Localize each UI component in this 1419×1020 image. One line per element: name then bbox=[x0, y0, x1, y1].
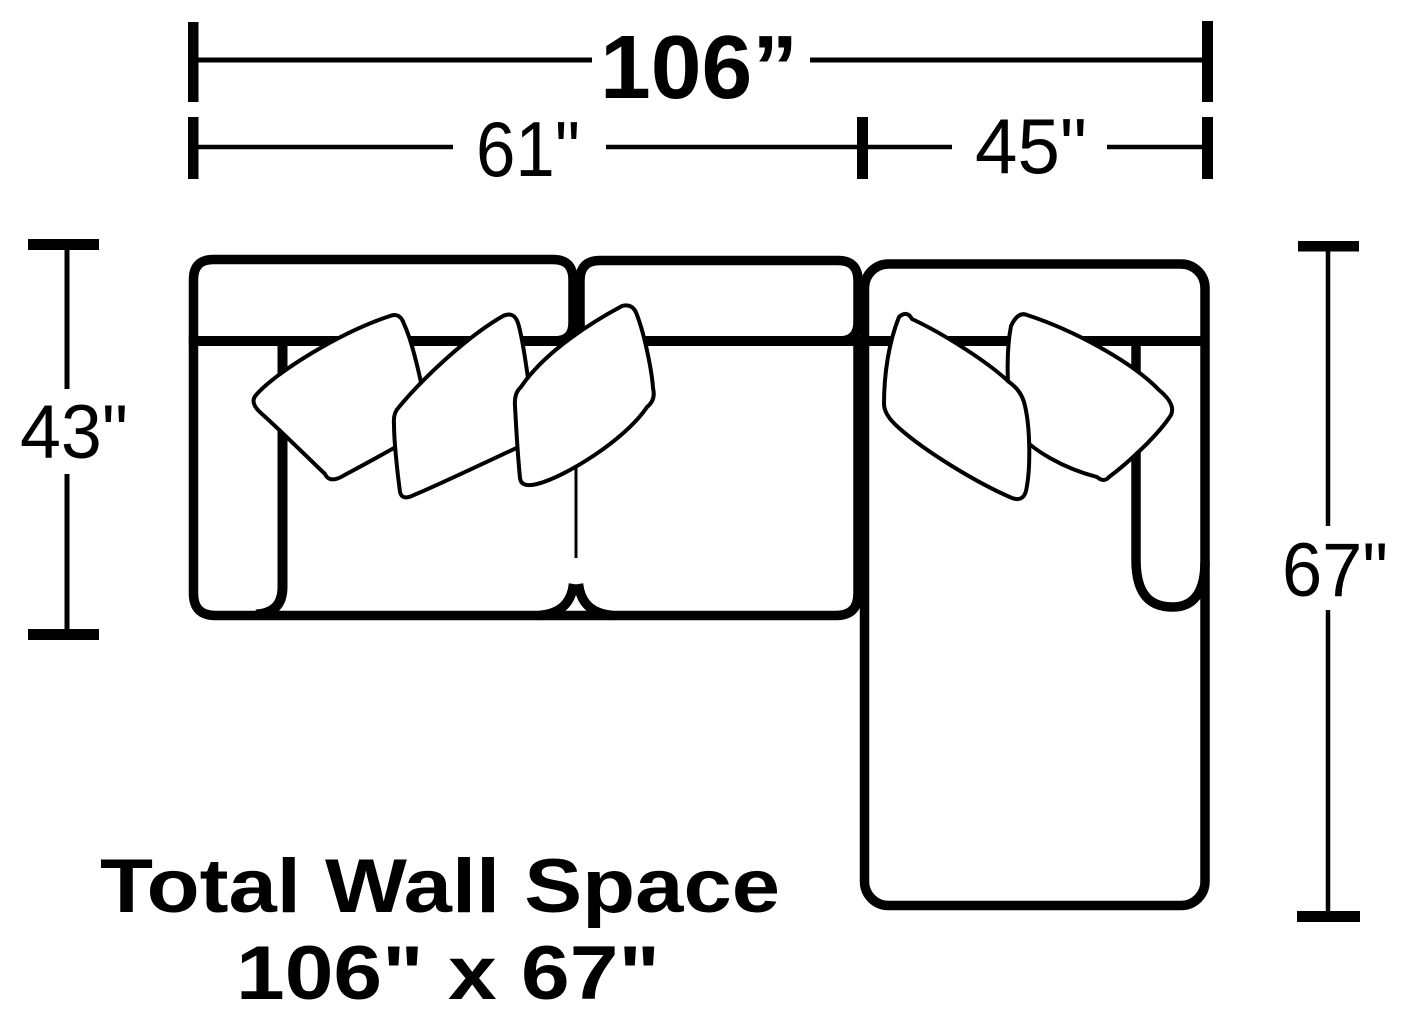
svg-text:61": 61" bbox=[476, 105, 580, 193]
svg-text:Total Wall Space: Total Wall Space bbox=[100, 844, 780, 929]
svg-text:67": 67" bbox=[1282, 528, 1388, 613]
svg-text:106" x 67": 106" x 67" bbox=[236, 931, 660, 1016]
svg-text:106”: 106” bbox=[600, 18, 798, 118]
svg-text:45": 45" bbox=[975, 102, 1087, 190]
svg-text:43": 43" bbox=[20, 390, 128, 475]
